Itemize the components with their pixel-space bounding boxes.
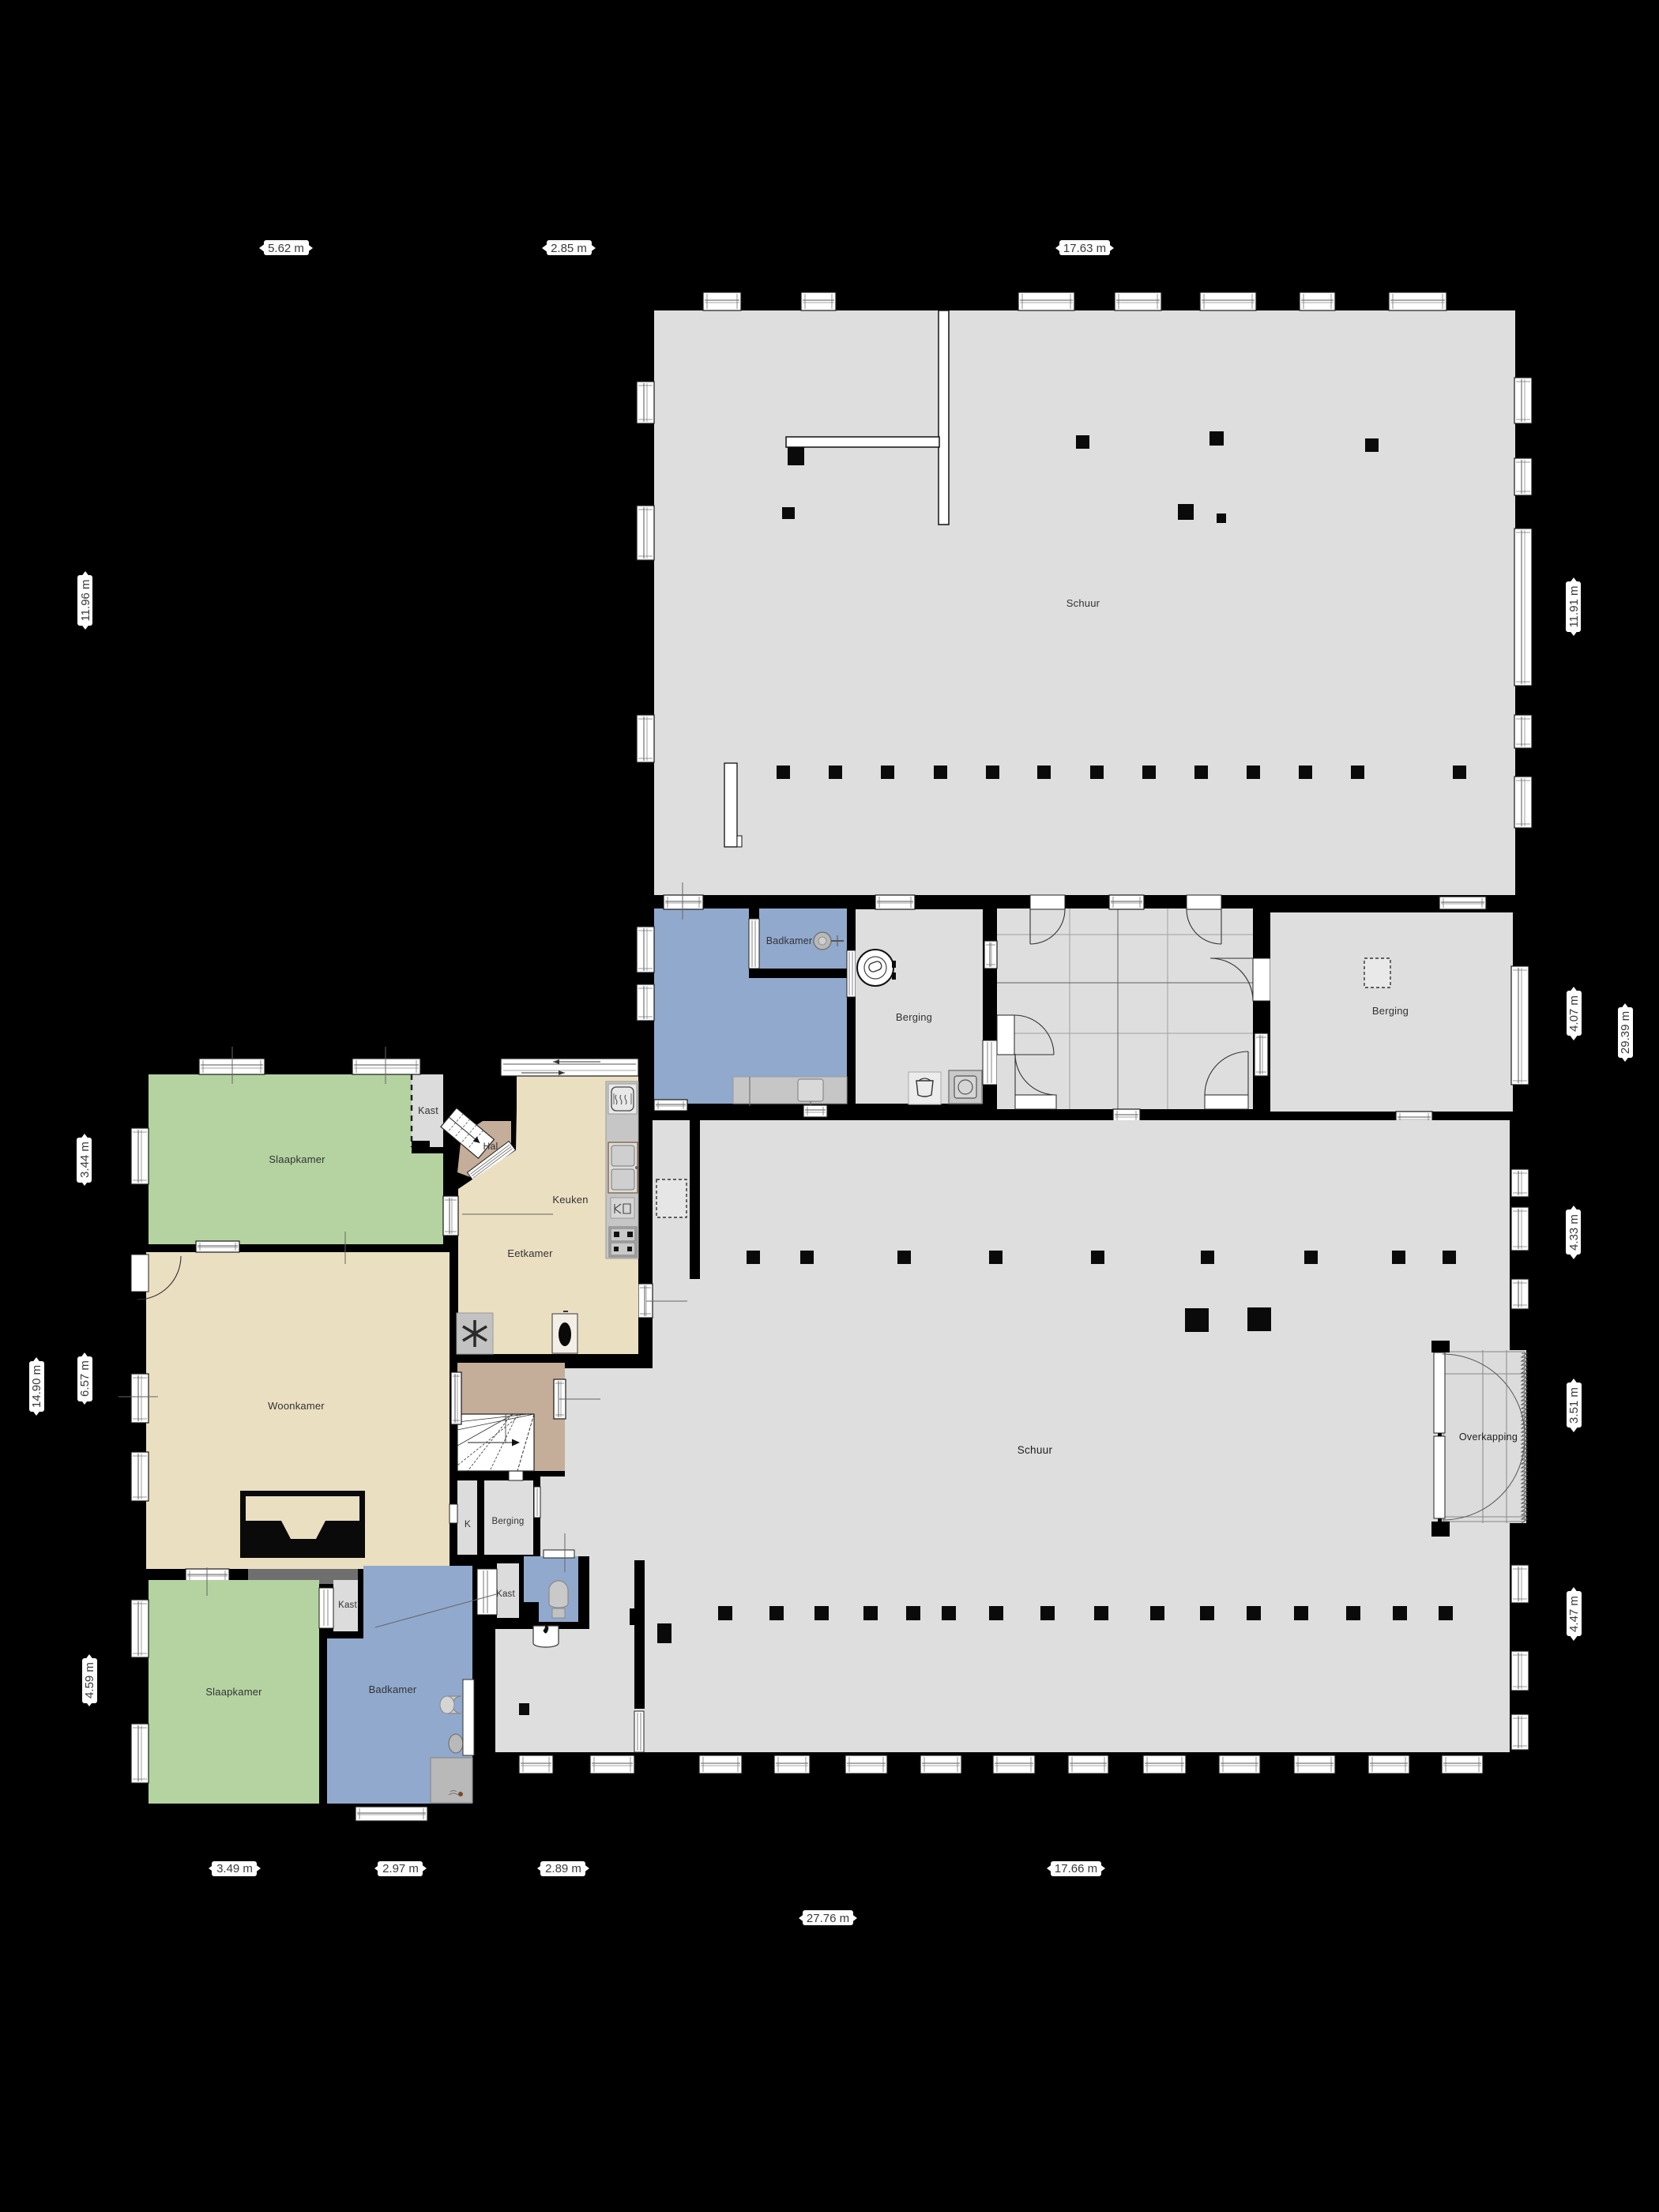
svg-text:Keuken: Keuken: [552, 1194, 588, 1206]
svg-text:2.97 m: 2.97 m: [382, 1862, 419, 1875]
svg-text:Berging: Berging: [896, 1011, 932, 1023]
svg-text:Kast: Kast: [496, 1589, 515, 1599]
svg-text:Eetkamer: Eetkamer: [507, 1247, 553, 1259]
svg-text:3.51 m: 3.51 m: [1567, 1387, 1581, 1424]
svg-text:Berging: Berging: [491, 1517, 524, 1526]
svg-text:17.66 m: 17.66 m: [1055, 1862, 1097, 1875]
svg-text:K: K: [465, 1518, 471, 1529]
svg-text:11.96 m: 11.96 m: [79, 579, 92, 621]
svg-text:4.47 m: 4.47 m: [1567, 1596, 1581, 1632]
svg-text:Slaapkamer: Slaapkamer: [269, 1153, 325, 1165]
svg-text:4.59 m: 4.59 m: [83, 1662, 96, 1698]
svg-text:Overkapping: Overkapping: [1459, 1431, 1518, 1443]
svg-text:6.57 m: 6.57 m: [78, 1360, 92, 1397]
svg-text:Woonkamer: Woonkamer: [268, 1400, 325, 1412]
svg-text:2.85 m: 2.85 m: [551, 242, 587, 255]
svg-text:17.63 m: 17.63 m: [1063, 242, 1106, 255]
svg-text:29.39 m: 29.39 m: [1619, 1011, 1632, 1054]
svg-text:Kast: Kast: [338, 1601, 357, 1610]
svg-text:14.90 m: 14.90 m: [30, 1365, 43, 1408]
svg-text:3.44 m: 3.44 m: [78, 1142, 92, 1178]
svg-text:11.91 m: 11.91 m: [1567, 585, 1581, 627]
svg-text:3.49 m: 3.49 m: [216, 1862, 253, 1875]
svg-text:Schuur: Schuur: [1066, 597, 1100, 609]
svg-text:Badkamer: Badkamer: [369, 1683, 417, 1695]
svg-text:4.07 m: 4.07 m: [1567, 995, 1581, 1032]
svg-text:Slaapkamer: Slaapkamer: [205, 1686, 262, 1698]
svg-text:5.62 m: 5.62 m: [268, 242, 304, 255]
svg-text:Berging: Berging: [1372, 1005, 1409, 1017]
svg-text:Hal: Hal: [483, 1141, 498, 1152]
svg-text:Schuur: Schuur: [1018, 1444, 1053, 1456]
svg-text:4.33 m: 4.33 m: [1567, 1214, 1581, 1251]
svg-text:Kast: Kast: [418, 1105, 438, 1116]
svg-text:27.76 m: 27.76 m: [807, 1912, 849, 1925]
svg-text:Badkamer: Badkamer: [766, 935, 813, 946]
svg-text:2.89 m: 2.89 m: [545, 1862, 581, 1875]
